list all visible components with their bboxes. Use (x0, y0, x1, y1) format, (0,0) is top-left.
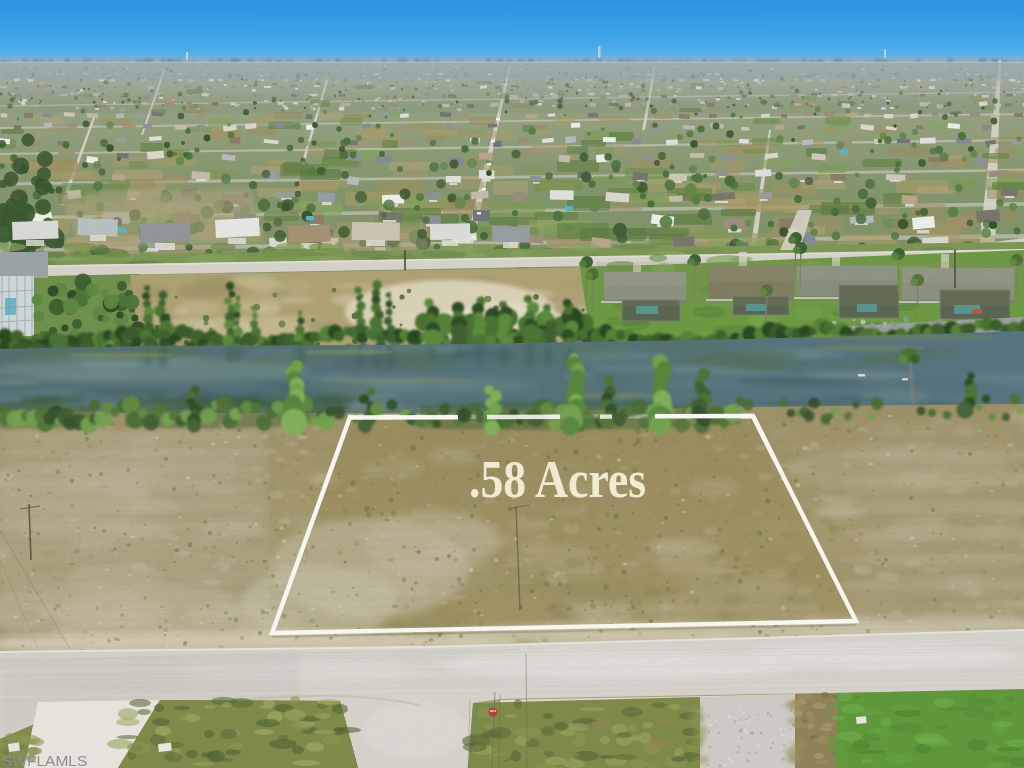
svg-text:SWFLAMLS: SWFLAMLS (2, 752, 87, 768)
